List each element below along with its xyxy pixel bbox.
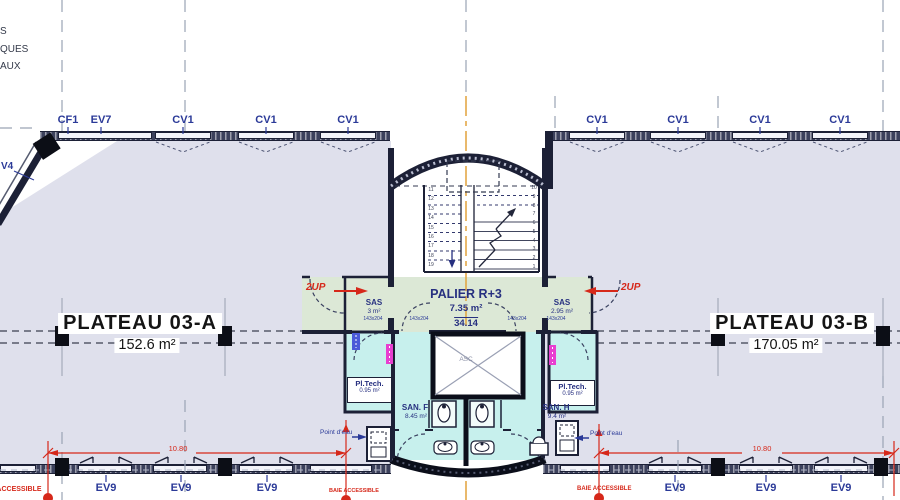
accessible-bay-label: BAIE ACCESSIBLE	[329, 489, 379, 495]
plateau-b-title: PLATEAU 03-B	[710, 313, 874, 334]
door-size-tag: 143x204	[507, 317, 526, 322]
sas-left-area: 3 m²	[368, 309, 381, 316]
facade-label-ev9: EV9	[665, 483, 686, 495]
tech-room-left-tag: Pl.Tech. 0.95 m²	[347, 377, 392, 403]
dimension-left: 10.80	[169, 445, 188, 453]
plateau-a-area: 152.6 m²	[114, 338, 179, 353]
door-size-tag: 143x204	[409, 317, 428, 322]
stair-direction-arrows	[449, 208, 517, 268]
plan-linework	[0, 0, 900, 500]
floor-plan-canvas: 111213141516171819 10987654321	[0, 0, 900, 500]
door-size-tag: 143x204	[363, 317, 382, 322]
palier-title: PALIER R+3	[430, 288, 502, 301]
facade-label-ev9: EV9	[257, 483, 278, 495]
walls	[0, 142, 597, 473]
facade-label-cv1: CV1	[586, 115, 607, 127]
facade-label-ev9: EV9	[171, 483, 192, 495]
palier-level: 34.14	[454, 317, 478, 329]
label-leader-lines	[14, 127, 841, 482]
facade-label-ev9: EV9	[756, 483, 777, 495]
san-f-area: 8.45 m²	[405, 414, 427, 421]
facade-label-ev7: EV7	[91, 115, 112, 127]
san-f-title: SAN. F	[402, 404, 428, 412]
facade-label-cv1: CV1	[829, 115, 850, 127]
facade-label-ev9: EV9	[831, 483, 852, 495]
elevator-label: ASC	[459, 357, 472, 364]
san-h-title: SAN. H	[542, 404, 569, 412]
accessible-bay-label: BAIE ACCESSIBLE	[577, 486, 631, 492]
sas-right-area: 2.95 m²	[551, 309, 573, 316]
palier-area: 7.35 m²	[450, 304, 483, 314]
legend-text-cut: AUX	[0, 62, 21, 73]
facade-label-cv1: CV1	[337, 115, 358, 127]
sas-left-title: SAS	[366, 299, 382, 307]
facade-label-ev9: EV9	[96, 483, 117, 495]
skylight-outline	[447, 161, 499, 192]
door-size-tag: 143x204	[546, 317, 565, 322]
facade-label-cv1: CV1	[255, 115, 276, 127]
facade-label-cv1: CV1	[749, 115, 770, 127]
facade-label-cv1: CV1	[172, 115, 193, 127]
san-h-area: 9.4 m²	[548, 414, 566, 421]
legend-text-cut: QUES	[0, 45, 28, 56]
window-opening-dashes	[156, 142, 867, 152]
facade-label-cf1: CF1	[58, 115, 79, 127]
plateau-b-area: 170.05 m²	[749, 338, 822, 353]
stair-up-tag-left: 2UP	[306, 283, 325, 294]
stair-up-tag-right: 2UP	[621, 283, 640, 294]
sas-right-title: SAS	[554, 299, 570, 307]
window-sash-marks	[80, 457, 867, 463]
facade-label-cv1: CV1	[667, 115, 688, 127]
accessible-bay-label: BAIE ACCESSIBLE	[0, 486, 42, 493]
dimension-right: 10.80	[753, 445, 772, 453]
elevator-shaft	[433, 334, 523, 397]
legend-text-cut: S	[0, 27, 7, 38]
water-point-label-left: Point d'eau	[320, 430, 352, 437]
water-point-label-right: Point d'eau	[590, 431, 622, 438]
plateau-a-title: PLATEAU 03-A	[58, 313, 222, 334]
facade-label-v4: V4	[1, 162, 13, 173]
